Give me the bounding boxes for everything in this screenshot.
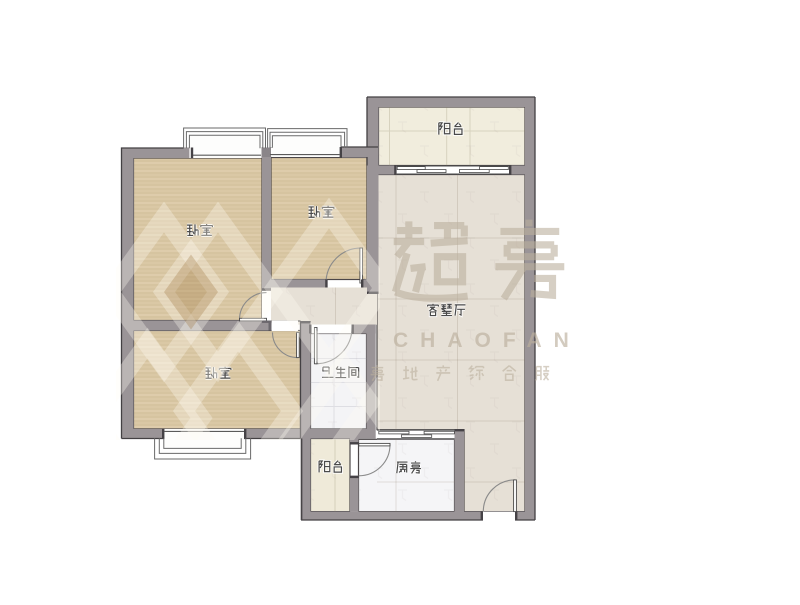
svg-text:CHAOFAN: CHAOFAN [393,329,581,352]
